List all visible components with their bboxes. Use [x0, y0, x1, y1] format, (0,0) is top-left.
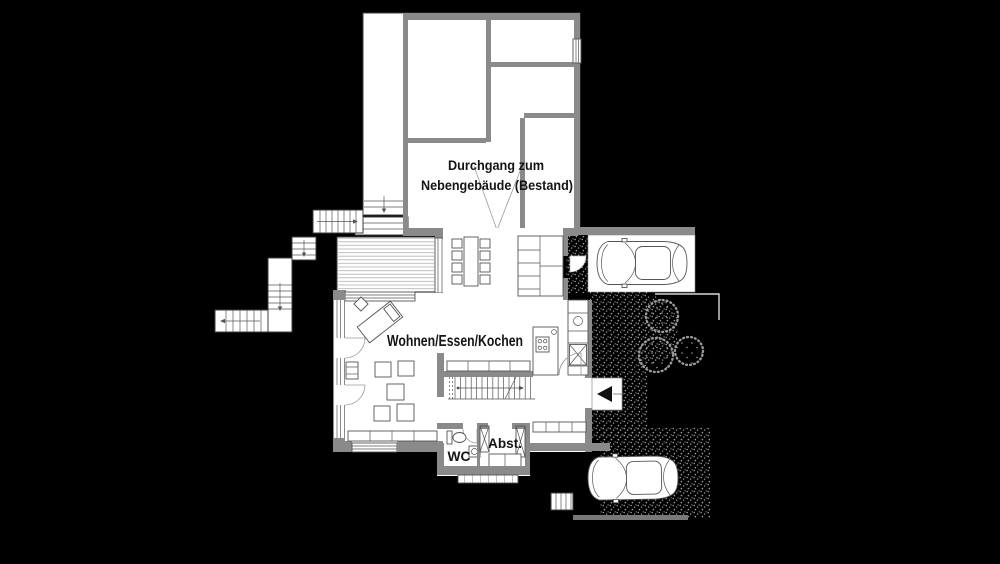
kitchen-tall-units [568, 300, 588, 375]
toilet [453, 433, 466, 443]
upper-building-window [573, 39, 581, 63]
living-north-window [345, 292, 415, 301]
west-window-3 [334, 405, 344, 438]
garden-steps [551, 493, 573, 510]
carport [578, 227, 695, 292]
stair-sideboard [447, 361, 530, 371]
floor-plan-drawing: Durchgang zum Nebengebäude (Bestand) Woh… [0, 0, 1000, 564]
armchair [346, 362, 358, 379]
storage-label: Abst. [488, 436, 522, 451]
west-door-1 [334, 338, 345, 358]
dining-table [464, 237, 478, 286]
coffee-table [387, 384, 404, 400]
west-window-1 [334, 300, 344, 338]
toilet-cistern [447, 431, 452, 444]
driveway-edge [573, 515, 688, 520]
parked-car-1 [597, 239, 687, 288]
living-south-window [352, 443, 397, 452]
upper-building [355, 13, 581, 236]
passage-label-line1: Durchgang zum [448, 157, 544, 173]
living-room-label: Wohnen/Essen/Kochen [387, 333, 523, 350]
bush [675, 337, 703, 365]
wardrobe [533, 422, 586, 432]
west-window-2 [334, 358, 344, 385]
sofa [348, 431, 437, 441]
bush [646, 300, 678, 332]
bush [639, 338, 673, 372]
parked-car-2 [588, 453, 679, 504]
passage-label-line2: Nebengebäude (Bestand) [421, 177, 573, 193]
floor-plan-canvas: Durchgang zum Nebengebäude (Bestand) Woh… [0, 0, 1000, 564]
upper-building-floor [403, 13, 580, 235]
west-door-2 [334, 385, 345, 405]
upper-building-wing [363, 13, 406, 215]
wc-label: WC [448, 449, 471, 464]
